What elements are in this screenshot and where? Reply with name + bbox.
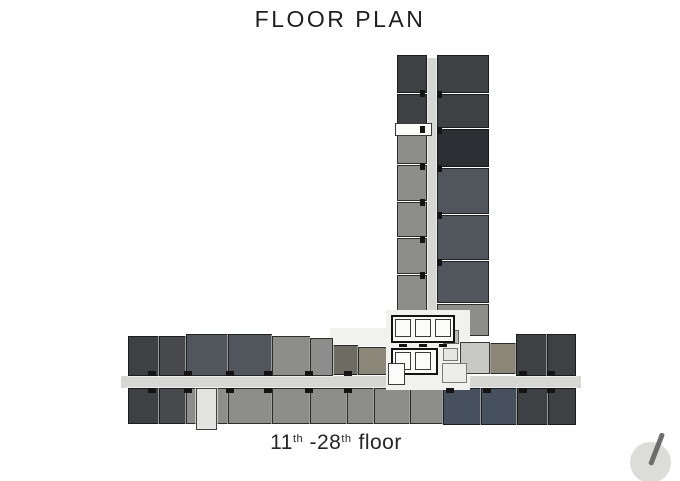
core-floor-left <box>330 328 388 346</box>
tower-label-box <box>395 123 432 136</box>
floor-range-end: -28 <box>303 431 341 454</box>
tower-unit <box>397 202 427 237</box>
door-tick <box>419 344 427 347</box>
door-tick <box>148 388 156 393</box>
door-tick <box>305 371 313 376</box>
tower-unit <box>437 261 489 303</box>
wing-corridor <box>121 376 581 388</box>
tower-unit <box>437 129 489 167</box>
wing-unit <box>347 388 374 424</box>
wing-unit <box>516 334 547 376</box>
lift-cell <box>415 352 431 370</box>
wing-unit <box>310 388 347 424</box>
door-tick <box>547 371 555 376</box>
floor-plan <box>0 0 680 481</box>
tower-unit <box>437 55 489 93</box>
door-tick <box>264 371 272 376</box>
tower-unit <box>437 168 489 214</box>
wing-unit <box>410 388 443 424</box>
wing-unit <box>159 388 186 424</box>
tower-unit <box>397 275 427 311</box>
door-tick <box>437 212 442 219</box>
tower-unit <box>397 165 427 201</box>
wing-unit <box>490 343 516 374</box>
door-tick <box>420 126 425 133</box>
door-tick <box>420 199 425 206</box>
door-tick <box>420 163 425 170</box>
door-tick <box>439 344 447 347</box>
wing-unit <box>517 388 548 425</box>
floor-range-caption: 11th -28thfloor <box>0 431 672 455</box>
door-tick <box>184 388 192 393</box>
door-tick <box>420 236 425 243</box>
wing-unit <box>228 388 272 424</box>
door-tick <box>420 272 425 279</box>
floor-plan-page: FLOOR PLAN 11th -28thfloor <box>0 0 680 481</box>
door-tick <box>184 371 192 376</box>
door-tick <box>437 165 442 172</box>
door-tick <box>437 91 442 98</box>
door-tick <box>399 344 407 347</box>
tower-unit <box>437 215 489 260</box>
utility-cell <box>443 348 458 361</box>
door-tick <box>437 259 442 266</box>
utility-cell <box>442 363 467 383</box>
floor-range-start: 11 <box>270 431 293 454</box>
wing-unit <box>374 388 410 424</box>
door-tick <box>519 388 527 393</box>
door-tick <box>226 388 234 393</box>
door-tick <box>305 388 313 393</box>
wing-unit <box>128 336 159 376</box>
door-tick <box>437 127 442 134</box>
tower-unit <box>397 238 427 274</box>
door-tick <box>483 388 491 393</box>
door-tick <box>148 371 156 376</box>
wing-unit <box>159 336 186 376</box>
tower-unit <box>437 94 489 128</box>
wing-unit <box>481 388 517 425</box>
lift-cell <box>415 319 431 337</box>
tower-unit <box>397 55 427 93</box>
door-tick <box>344 371 352 376</box>
wing-unit <box>228 334 272 376</box>
door-tick <box>226 371 234 376</box>
door-tick <box>344 388 352 393</box>
wing-unit <box>128 388 159 424</box>
north-indicator <box>630 439 674 481</box>
wing-unit <box>443 388 481 425</box>
ordinal-suffix: th <box>293 433 303 445</box>
ordinal-suffix: th <box>341 433 351 445</box>
door-tick <box>264 388 272 393</box>
door-tick <box>420 90 425 97</box>
door-tick <box>446 388 454 393</box>
lift-cell <box>435 319 451 337</box>
stair-exit <box>196 388 217 430</box>
wing-unit <box>548 388 576 425</box>
wing-unit <box>272 388 310 424</box>
fireman-lift-box <box>388 363 405 385</box>
wing-unit <box>310 338 333 376</box>
door-tick <box>547 388 555 393</box>
door-tick <box>519 371 527 376</box>
lift-cell <box>395 319 411 337</box>
wing-unit <box>186 334 228 376</box>
wing-unit <box>272 336 310 376</box>
wing-unit <box>547 334 576 376</box>
floor-word: floor <box>359 431 402 454</box>
wing-unit <box>358 347 389 375</box>
